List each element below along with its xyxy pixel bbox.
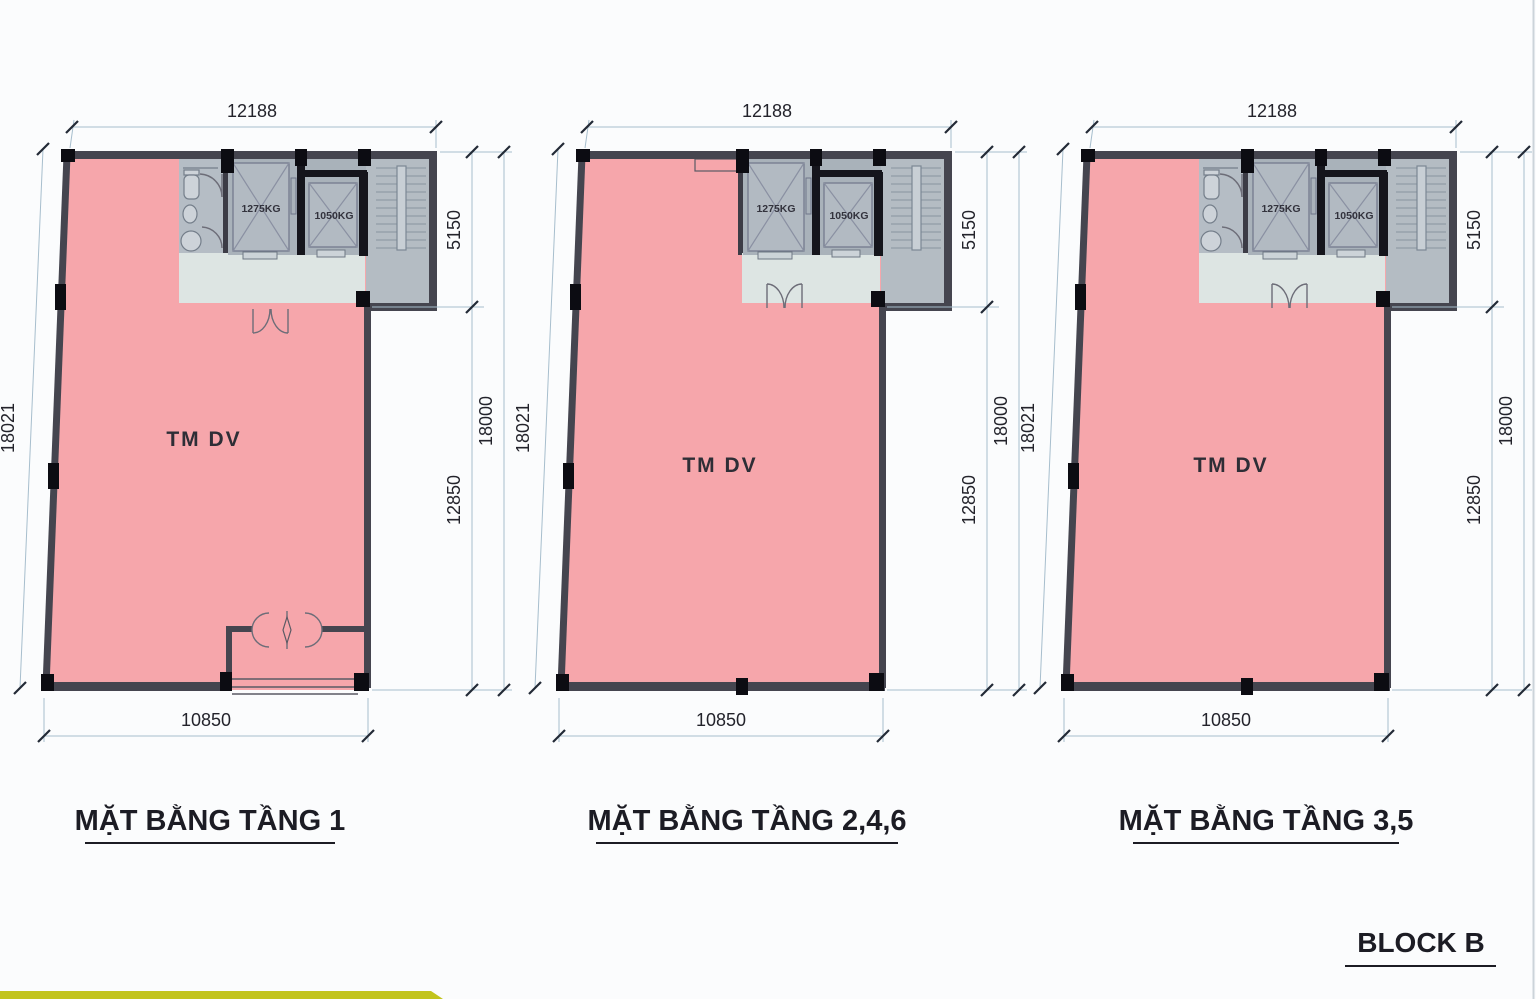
room-label: TM DV	[682, 454, 757, 477]
dim-right-upper: 5150	[1464, 210, 1484, 250]
dim-right-total: 18000	[476, 396, 496, 446]
dim-right-lower: 12850	[444, 475, 464, 525]
dim-right-total: 18000	[1496, 396, 1516, 446]
plan-title: MẶT BẰNG TẦNG 1	[75, 803, 346, 837]
dim-right-total: 18000	[991, 396, 1011, 446]
elevator-lobby	[179, 253, 365, 303]
dim-left: 18021	[0, 403, 18, 453]
dim-right-upper: 5150	[959, 210, 979, 250]
drawing-sheet: 1275KG 1050KG	[0, 0, 1536, 999]
dim-bottom: 10850	[1201, 710, 1251, 730]
dim-top: 12188	[742, 101, 792, 121]
floor-plan-tang-246: 12188 5150 12850 18000 18021 10850 TM DV…	[513, 101, 1027, 843]
plan-title: MẶT BẰNG TẦNG 2,4,6	[587, 803, 906, 837]
floor-plans-canvas: 1275KG 1050KG	[0, 0, 1536, 999]
block-label: BLOCK B	[1357, 927, 1485, 958]
dim-left: 18021	[1018, 403, 1038, 453]
dim-left: 18021	[513, 403, 533, 453]
room-label: TM DV	[1193, 454, 1268, 477]
dim-top: 12188	[1247, 101, 1297, 121]
dim-right-lower: 12850	[1464, 475, 1484, 525]
plan-title: MẶT BẰNG TẦNG 3,5	[1119, 803, 1414, 837]
elevator-lobby	[742, 253, 880, 303]
dim-top: 12188	[227, 101, 277, 121]
dim-bottom: 10850	[181, 710, 231, 730]
dim-right-upper: 5150	[444, 210, 464, 250]
dim-right-lower: 12850	[959, 475, 979, 525]
accent-bar	[0, 991, 443, 999]
room-label: TM DV	[166, 428, 241, 451]
floor-plan-tang-35: 12188 5150 12850 18000 18021 10850 TM DV…	[1018, 101, 1532, 843]
dim-bottom: 10850	[696, 710, 746, 730]
floor-plan-tang-1: 12188 5150 12850 18000 18021 10850 TM DV…	[0, 101, 512, 843]
